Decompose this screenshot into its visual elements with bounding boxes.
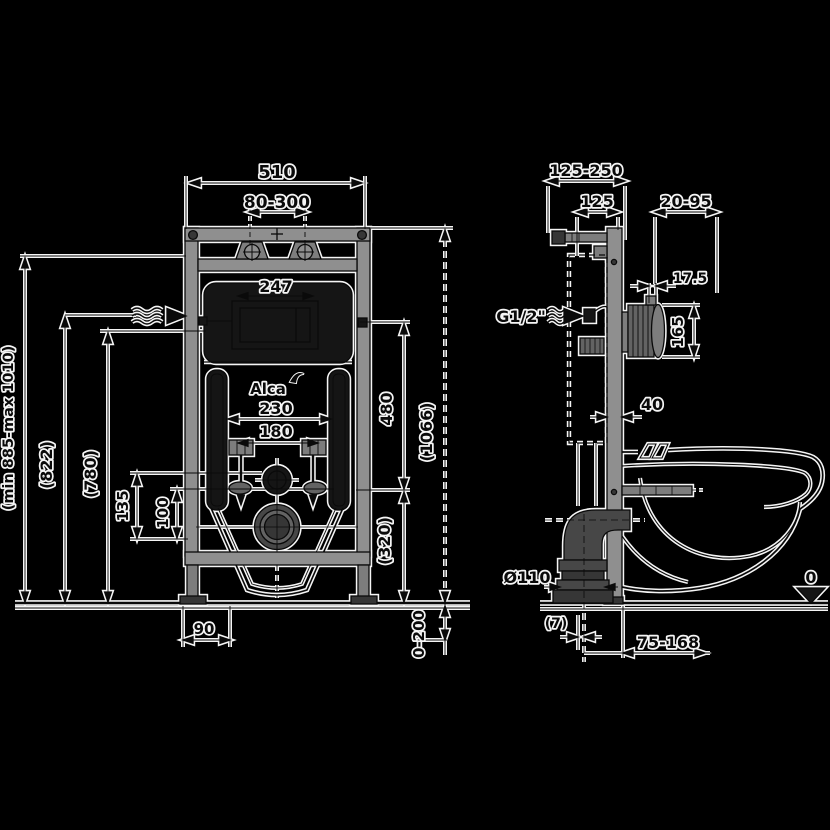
dim-total-width: 510 — [258, 162, 296, 183]
dim-inlet-height: (822) — [37, 441, 56, 489]
corner-bolt — [358, 231, 367, 240]
dim-lower-span: (320) — [375, 517, 394, 565]
dim-hanger-spacing: 80-300 — [244, 193, 310, 213]
dim-upper-span: 480 — [377, 392, 396, 425]
dim-bolt-spacing-inner: 180 — [259, 422, 292, 441]
dim-flush-window-width: 247 — [259, 277, 292, 296]
dim-foot-width: 90 — [194, 620, 215, 638]
fixing-slot-left — [229, 482, 251, 494]
dim-profile-depth: 40 — [641, 395, 663, 414]
foot-right — [358, 565, 369, 598]
dim-slot-offset-a: 135 — [114, 490, 132, 521]
hanger-bracket-left — [236, 242, 268, 261]
dim-height-adjust-range: (min 885-max 1010) — [1, 346, 17, 511]
label-drain-diameter: Ø110 — [504, 568, 551, 587]
shutoff-valve — [580, 338, 604, 354]
dim-frame-height: (1066) — [417, 402, 436, 461]
dim-cistern-depth: 125 — [580, 192, 613, 211]
dim-floor-offset: (7) — [545, 616, 568, 632]
frame-second-bar — [198, 259, 357, 271]
dim-front-clearance: 20-95 — [660, 192, 711, 211]
right-inlet-fitting — [358, 318, 367, 327]
wc-frame-installation-drawing: 510 80-300 247 Alca 230 180 (min 885-max… — [0, 0, 830, 830]
dim-foot-extension: 0-200 — [410, 610, 428, 658]
frame-right-rail — [357, 228, 370, 556]
brand-logo-text: Alca — [250, 380, 286, 398]
left-inlet-fitting — [199, 317, 207, 325]
dim-box-height: 165 — [669, 316, 687, 347]
background — [0, 0, 830, 830]
foot-plate-left — [180, 596, 206, 604]
dim-bolt-spacing-outer: 230 — [259, 399, 292, 418]
dim-wall-distance: 125-250 — [549, 161, 622, 180]
fixing-slot-right — [304, 482, 326, 494]
frame-post-profile — [607, 228, 622, 598]
flush-plate-box — [622, 296, 665, 358]
foot-plate-right — [351, 596, 377, 604]
frame-left-rail — [185, 228, 198, 556]
technical-drawing-canvas: 510 80-300 247 Alca 230 180 (min 885-max… — [0, 0, 830, 830]
corner-bolt — [189, 231, 198, 240]
dim-drain-distance: 75-168 — [637, 633, 699, 652]
label-datum-level: 0 — [805, 568, 816, 587]
label-water-supply-thread: G1/2" — [496, 307, 546, 326]
frame-lower-bar — [185, 552, 370, 565]
dim-slot-offset-b: 100 — [154, 497, 172, 528]
mounting-rod — [622, 486, 692, 495]
foot-left — [187, 565, 198, 598]
dim-plate-offset: 17.5 — [673, 271, 708, 287]
dim-window-height: (780) — [81, 450, 100, 498]
